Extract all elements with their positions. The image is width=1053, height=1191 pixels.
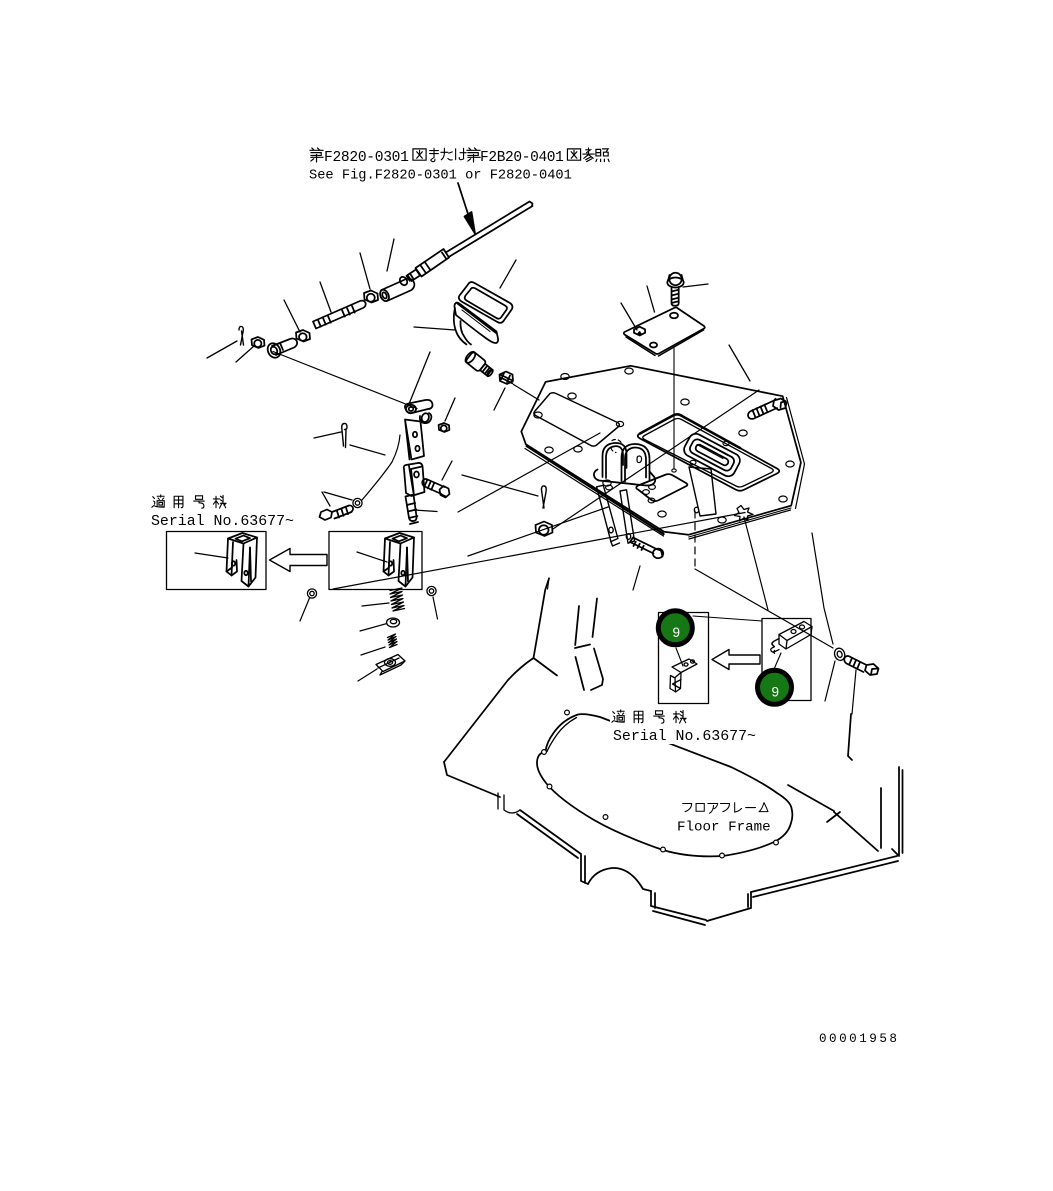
svg-text:9: 9: [673, 625, 681, 640]
svg-text:F2820-0301: F2820-0301: [324, 150, 409, 166]
svg-text:Floor Frame: Floor Frame: [677, 820, 771, 836]
svg-text:9: 9: [772, 685, 780, 700]
svg-text:F2B20-0401: F2B20-0401: [480, 150, 564, 166]
svg-text:Serial No.63677~: Serial No.63677~: [151, 514, 294, 530]
svg-text:See Fig.F2820-0301 or F2820-04: See Fig.F2820-0301 or F2820-0401: [309, 169, 572, 184]
svg-text:Serial No.63677~: Serial No.63677~: [613, 729, 756, 745]
svg-text:00001958: 00001958: [819, 1032, 899, 1046]
